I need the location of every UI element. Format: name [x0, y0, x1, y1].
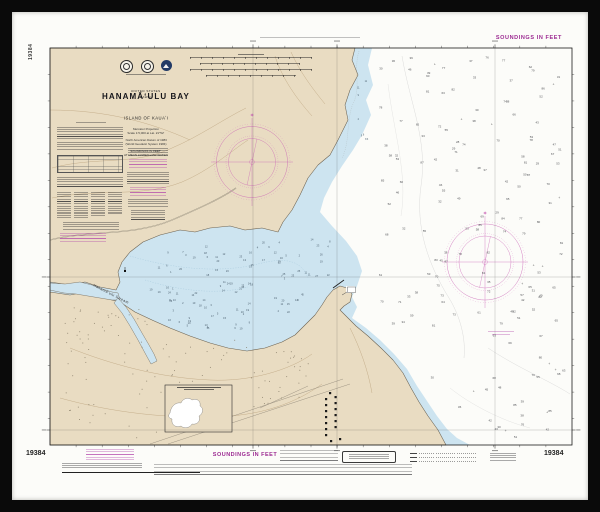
inset-title [171, 387, 227, 390]
tide-table [57, 155, 123, 173]
aux-note [128, 199, 168, 207]
notes-paragraph [57, 177, 123, 188]
chart-main-title: HANAMĀʻULU BAY [66, 92, 226, 101]
agency-logos [96, 60, 196, 78]
framed-nautical-chart: ✶ ✶ [0, 0, 600, 512]
conversion-scale [410, 453, 478, 465]
caution-note [60, 233, 106, 242]
agency-caption [126, 74, 166, 75]
notes-paragraph [57, 142, 123, 151]
boxed-note-lines [349, 454, 389, 459]
abbrev-column [57, 192, 71, 218]
noaa-seal-icon [141, 60, 154, 73]
inset-title-line2 [184, 389, 214, 390]
scale-bar [190, 69, 312, 71]
conversion-row [410, 457, 478, 459]
inset-title-line [177, 387, 221, 388]
scale-label [238, 54, 264, 55]
aux-note-magenta [129, 159, 167, 169]
scale-bar [200, 63, 300, 65]
aux-note [127, 172, 169, 184]
water-note-line [488, 331, 514, 333]
chart-number-side: 19384 [28, 44, 34, 60]
notes-heading [76, 122, 106, 124]
boxed-note [342, 451, 396, 463]
scale-bar [190, 57, 312, 59]
commerce-seal-icon [120, 60, 133, 73]
edition-note [490, 453, 516, 461]
aux-note [128, 148, 168, 156]
stream-label: Hanamāʻulu Stream [93, 284, 129, 304]
chart-paper: ✶ ✶ [12, 12, 588, 500]
soundings-in-feet-bottom: SOUNDINGS IN FEET [209, 452, 281, 458]
abbreviations-list [57, 192, 125, 218]
publication-note [280, 450, 338, 463]
conversion-row [410, 453, 478, 455]
notes-paragraph [57, 127, 123, 139]
chart-notes-block [57, 122, 125, 242]
abbrev-column [108, 192, 122, 214]
top-margin-note [260, 37, 360, 38]
auxiliary-notes-column [126, 148, 170, 220]
noaa-emblem-icon [161, 60, 172, 71]
distribution-paragraph [154, 464, 412, 476]
chart-number-bottom-right: 19384 [544, 450, 563, 457]
abbrev-column [74, 192, 88, 218]
magenta-fine-print [86, 449, 134, 462]
fine-print-lines [62, 463, 142, 469]
stream-label-wrap: Hanamāʻulu Stream [94, 276, 182, 294]
water-note-line [492, 334, 510, 336]
soundings-in-feet-top: SOUNDINGS IN FEET [496, 35, 562, 41]
scale-bar [206, 75, 296, 77]
chart-number-bottom-left: 19384 [26, 450, 45, 457]
aux-note-magenta [130, 187, 166, 196]
abbrev-column [91, 192, 105, 216]
map-overlay: UNITED STATES HAWAII HANAMĀʻULU BAY ISLA… [50, 48, 572, 445]
notes-paragraph [63, 222, 119, 230]
conversion-row [410, 461, 478, 463]
water-magenta-note [488, 331, 514, 336]
aux-note [131, 210, 165, 220]
